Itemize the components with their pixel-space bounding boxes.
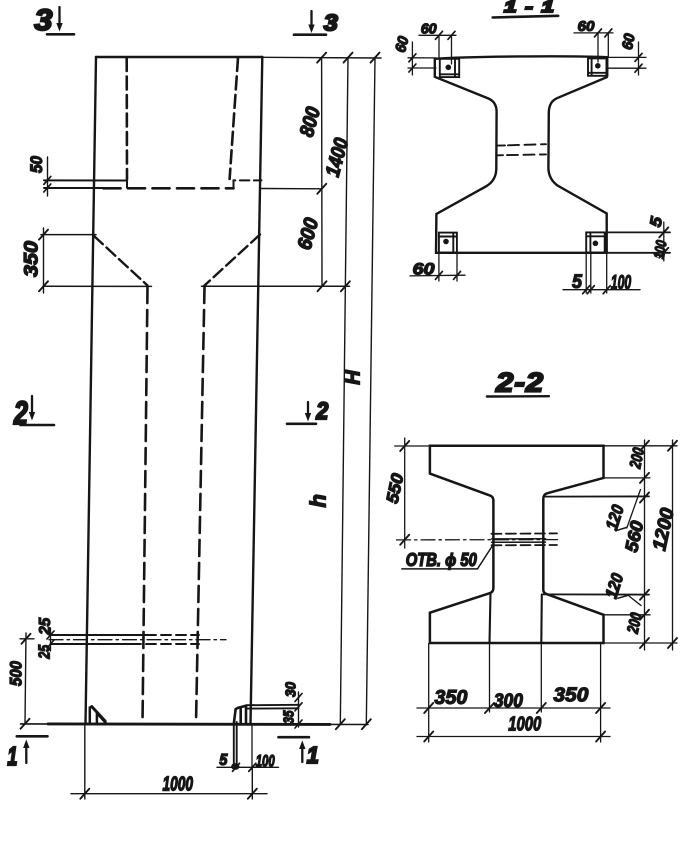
svg-text:60: 60 bbox=[392, 34, 413, 54]
svg-text:500: 500 bbox=[6, 661, 25, 686]
svg-text:5: 5 bbox=[219, 752, 227, 769]
svg-text:1: 1 bbox=[7, 741, 17, 771]
svg-text:25: 25 bbox=[36, 644, 53, 660]
svg-text:100: 100 bbox=[256, 752, 275, 771]
svg-text:5: 5 bbox=[648, 214, 667, 228]
svg-text:1000: 1000 bbox=[508, 713, 541, 735]
svg-text:H: H bbox=[343, 370, 365, 385]
svg-text:5: 5 bbox=[572, 272, 582, 293]
svg-text:h: h bbox=[306, 494, 331, 507]
svg-text:350: 350 bbox=[22, 241, 43, 277]
svg-text:ОТВ. ϕ 50: ОТВ. ϕ 50 bbox=[406, 550, 477, 570]
svg-text:60: 60 bbox=[413, 260, 436, 279]
svg-text:200: 200 bbox=[625, 611, 646, 635]
svg-text:1 - 1: 1 - 1 bbox=[504, 0, 555, 16]
svg-text:300: 300 bbox=[494, 691, 523, 712]
svg-text:35: 35 bbox=[281, 710, 298, 724]
svg-text:1400: 1400 bbox=[322, 136, 353, 179]
svg-text:100: 100 bbox=[651, 239, 671, 261]
svg-text:800: 800 bbox=[296, 105, 325, 140]
svg-text:60: 60 bbox=[619, 32, 639, 51]
svg-text:2: 2 bbox=[315, 398, 328, 425]
svg-text:560: 560 bbox=[621, 519, 647, 554]
svg-text:1200: 1200 bbox=[649, 506, 679, 553]
svg-text:25: 25 bbox=[37, 617, 54, 636]
svg-text:1: 1 bbox=[307, 742, 319, 768]
svg-text:30: 30 bbox=[282, 681, 299, 697]
svg-text:350: 350 bbox=[434, 687, 467, 709]
svg-text:3: 3 bbox=[34, 4, 52, 37]
svg-text:50: 50 bbox=[27, 156, 46, 173]
svg-text:1000: 1000 bbox=[163, 774, 194, 796]
svg-text:350: 350 bbox=[553, 685, 588, 707]
svg-text:2-2: 2-2 bbox=[495, 368, 544, 398]
svg-text:550: 550 bbox=[383, 471, 408, 505]
svg-text:600: 600 bbox=[294, 216, 324, 253]
svg-text:100: 100 bbox=[611, 272, 632, 294]
svg-text:3: 3 bbox=[324, 10, 338, 36]
